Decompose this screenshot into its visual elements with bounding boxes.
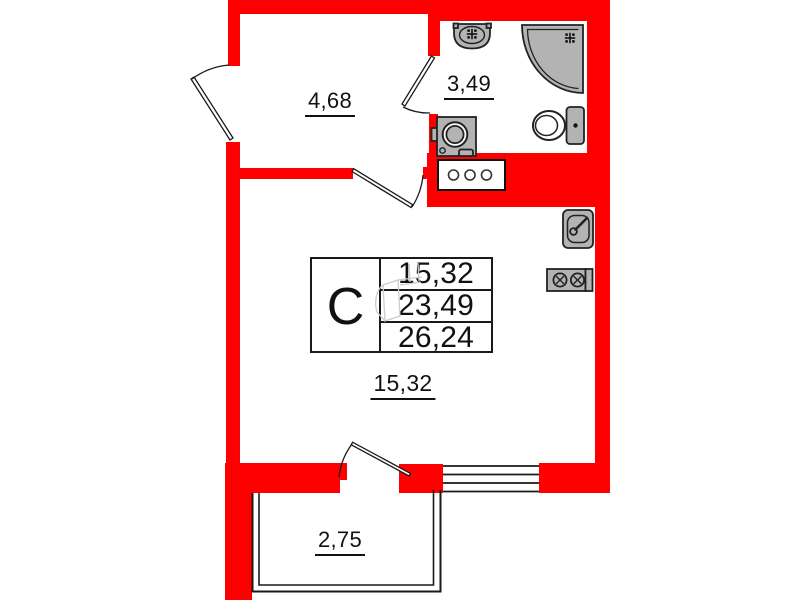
balcony-area-label: 2,75: [315, 529, 365, 556]
corner-shower-icon: [522, 25, 583, 93]
wall-window-right-block: [539, 463, 610, 493]
hallway-area-label: 4,68: [305, 90, 355, 117]
unit-type-label: С: [312, 259, 381, 351]
wall-top-bathroom: [428, 0, 610, 21]
stove-icon: [547, 269, 593, 291]
bathroom-door-leaf: [402, 56, 435, 106]
living-area-label: 15,32: [370, 372, 435, 400]
wall-left-middle: [226, 142, 240, 464]
wall-hallway-bottom: [240, 168, 353, 179]
faucet-symbol: [467, 29, 477, 39]
bath-sink-corner: [487, 24, 492, 29]
unit-info-box: С 15,32 23,49 26,24: [310, 257, 493, 353]
living-room-door-swing-arc: [412, 175, 423, 207]
bathroom-area-label: 3,49: [444, 73, 494, 100]
ventilation-shaft-icon: [438, 160, 505, 190]
toilet-button: [573, 123, 577, 127]
vent-hole: [449, 170, 459, 180]
unit-area-row-living: 15,32: [381, 259, 491, 289]
entrance-door: [191, 65, 233, 140]
window-icon: [443, 466, 539, 492]
vent-hole: [482, 170, 492, 180]
floor-plan: 4,68 3,49 15,32 2,75 С 15,32 23,49 26,24: [0, 0, 800, 600]
entrance-door-leaf: [191, 77, 233, 140]
bath-sink-icon: [454, 24, 492, 49]
bathroom-door-swing-arc: [403, 107, 430, 113]
kitchen-sink-icon: [563, 210, 593, 248]
bath-sink-corner: [454, 24, 459, 29]
wall-door-jamb: [423, 167, 429, 179]
washing-machine-panel: [459, 150, 473, 157]
wall-right-lower: [595, 200, 610, 465]
balcony-door-leaf: [351, 442, 410, 476]
vent-hole: [465, 170, 475, 180]
shower-drain-symbol: [565, 33, 575, 43]
entrance-door-swing-arc: [192, 65, 229, 79]
wall-bath-divider-upper: [428, 13, 440, 56]
unit-area-row-overall: 26,24: [381, 321, 491, 353]
living-room-door: [352, 169, 423, 208]
wall-left-upper: [228, 0, 240, 66]
unit-area-rows: 15,32 23,49 26,24: [381, 259, 491, 351]
wall-main-bottom-b: [225, 463, 340, 493]
wall-balcony-door-block: [399, 464, 443, 493]
toilet-icon: [533, 107, 584, 144]
bathroom-door: [402, 56, 435, 113]
wall-top-hallway: [228, 0, 438, 14]
stove-side-panel: [586, 269, 593, 291]
living-room-door-leaf: [352, 169, 413, 208]
washing-machine-door-inner: [446, 126, 463, 143]
washing-machine-icon: [432, 117, 477, 156]
unit-area-row-total: 23,49: [381, 289, 491, 321]
